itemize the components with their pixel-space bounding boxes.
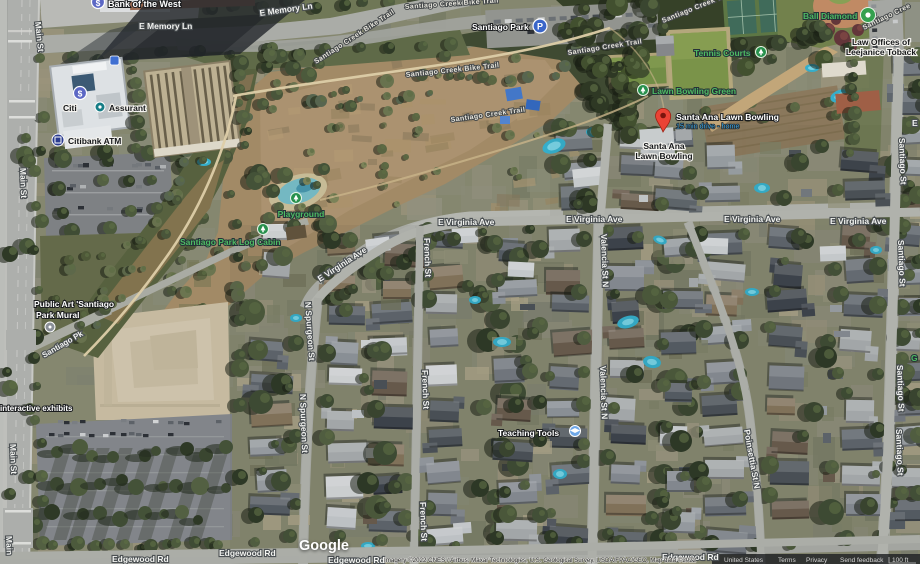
svg-text:Main St: Main St bbox=[18, 168, 29, 199]
svg-text:Main: Main bbox=[4, 536, 15, 556]
svg-text:French St: French St bbox=[420, 370, 431, 410]
svg-text:Law Offices of: Law Offices of bbox=[852, 37, 910, 47]
svg-text:Assurant: Assurant bbox=[109, 103, 146, 113]
svg-text:French St: French St bbox=[418, 502, 429, 542]
svg-text:Teaching Tools: Teaching Tools bbox=[498, 428, 559, 438]
svg-text:Valencia St N: Valencia St N bbox=[598, 366, 610, 420]
svg-text:Lawn Bowling Green: Lawn Bowling Green bbox=[652, 86, 736, 96]
svg-text:Main St: Main St bbox=[8, 444, 19, 475]
svg-text:Edgewood Rd: Edgewood Rd bbox=[112, 554, 169, 564]
svg-text:Privacy: Privacy bbox=[806, 557, 828, 564]
svg-text:E Virginia Ave: E Virginia Ave bbox=[438, 217, 495, 227]
svg-text:P: P bbox=[537, 22, 543, 32]
svg-text:Public Art 'Santiago: Public Art 'Santiago bbox=[34, 299, 114, 309]
svg-text:United States: United States bbox=[724, 557, 764, 564]
svg-text:Citi: Citi bbox=[63, 103, 77, 113]
svg-text:Santiago St: Santiago St bbox=[896, 240, 908, 287]
svg-text:Playground: Playground bbox=[278, 209, 325, 219]
svg-text:Santa Ana: Santa Ana bbox=[643, 141, 685, 151]
svg-text:E: E bbox=[912, 118, 918, 128]
svg-text:Lawn Bowling: Lawn Bowling bbox=[635, 151, 692, 161]
svg-text:Santa Ana Lawn Bowling: Santa Ana Lawn Bowling bbox=[676, 112, 779, 122]
svg-text:Ball Diamond: Ball Diamond bbox=[803, 11, 857, 21]
svg-text:Google: Google bbox=[299, 538, 349, 554]
svg-text:Santiago St: Santiago St bbox=[895, 365, 907, 412]
svg-text:$: $ bbox=[96, 0, 101, 8]
svg-text:Imagery ©2022 CNES / Airbus, M: Imagery ©2022 CNES / Airbus, Maxar Techn… bbox=[384, 557, 697, 564]
svg-text:French St: French St bbox=[422, 238, 433, 278]
svg-text:Leejanice Toback: Leejanice Toback bbox=[846, 47, 917, 57]
svg-text:Edgewood Rd: Edgewood Rd bbox=[219, 548, 276, 558]
svg-text:E Virginia Ave: E Virginia Ave bbox=[566, 214, 623, 224]
svg-text:Santiago Park Log Cabin: Santiago Park Log Cabin bbox=[180, 237, 281, 247]
svg-text:E Virginia Ave: E Virginia Ave bbox=[724, 214, 781, 224]
svg-text:Citibank ATM: Citibank ATM bbox=[68, 136, 121, 146]
svg-text:Bank of the West: Bank of the West bbox=[108, 0, 181, 9]
svg-text:N Spurgeon St: N Spurgeon St bbox=[298, 394, 310, 454]
svg-text:interactive exhibits: interactive exhibits bbox=[0, 404, 73, 413]
svg-text:Tennis Courts: Tennis Courts bbox=[694, 48, 751, 58]
svg-text:Terms: Terms bbox=[778, 557, 796, 564]
svg-text:Edgewood Rd: Edgewood Rd bbox=[328, 555, 385, 564]
svg-text:G: G bbox=[911, 353, 918, 363]
svg-text:E Virginia Ave: E Virginia Ave bbox=[830, 216, 887, 226]
svg-text:15 min drive - home: 15 min drive - home bbox=[676, 122, 740, 131]
svg-text:Park Mural: Park Mural bbox=[36, 310, 79, 320]
svg-text:Send feedback: Send feedback bbox=[840, 557, 884, 564]
svg-text:Santiago St: Santiago St bbox=[897, 138, 909, 185]
svg-text:$: $ bbox=[78, 89, 83, 99]
svg-text:Valencia St N: Valencia St N bbox=[599, 234, 611, 288]
svg-text:Santiago St: Santiago St bbox=[894, 429, 906, 476]
svg-text:Santiago Park: Santiago Park bbox=[472, 22, 529, 32]
svg-text:E Memory Ln: E Memory Ln bbox=[139, 21, 192, 31]
